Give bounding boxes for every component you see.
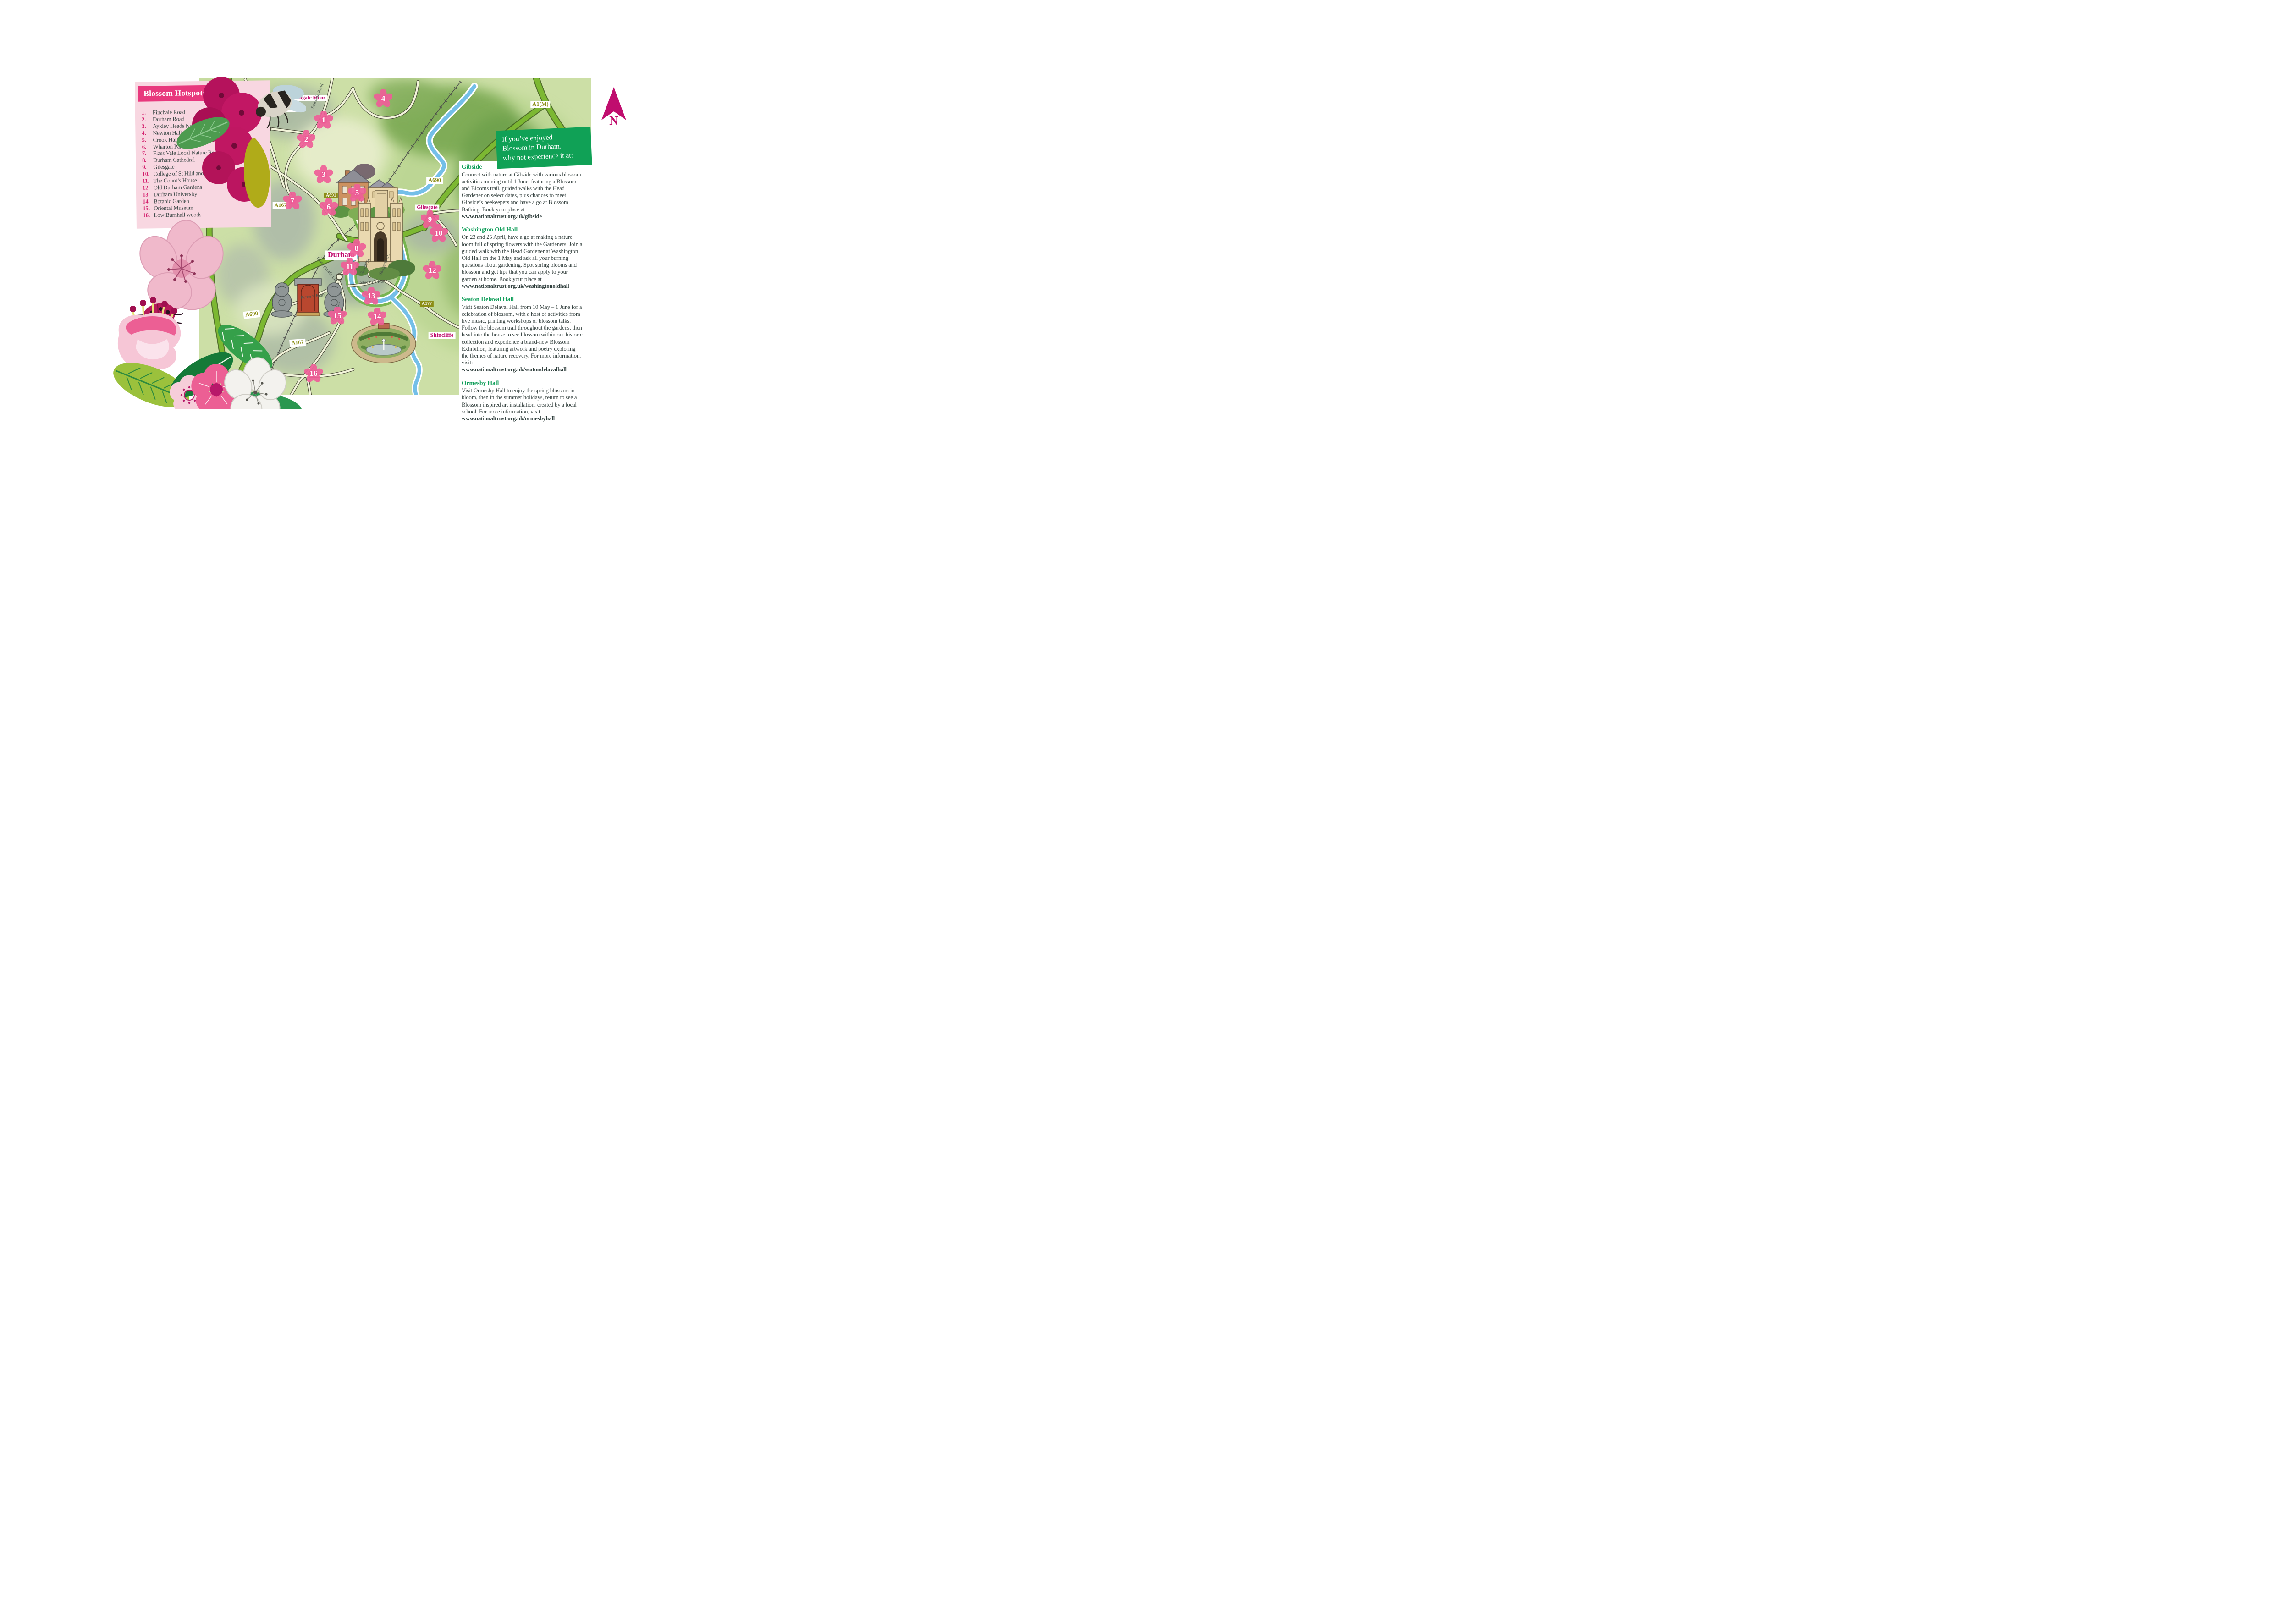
map-marker: 4 (374, 89, 392, 108)
hotspots-title: Blossom Hotspots (143, 88, 206, 98)
map-marker: 8 (347, 239, 366, 258)
map-label-langley-moor-2: Moor (227, 340, 243, 346)
road-badge-a690-east: A690 (426, 177, 443, 184)
map-marker: 15 (328, 307, 347, 325)
section-body: On 23 and 25 April, have a go at making … (462, 234, 584, 290)
section-title: Ormesby Hall (462, 380, 584, 387)
map-marker: 1 (314, 111, 333, 129)
map-marker: 3 (314, 165, 333, 184)
hotspots-title-bar: Blossom Hotspots (138, 85, 212, 102)
map-marker: 6 (320, 198, 338, 216)
map-label-gilesgate: Gilesgate (415, 205, 439, 211)
map-marker: 5 (348, 184, 366, 202)
list-item: 16.Low Burnhall woods (143, 210, 257, 219)
section-body: Visit Seaton Delaval Hall from 10 May – … (462, 304, 584, 374)
map-marker: 14 (368, 308, 386, 326)
leaf (107, 354, 195, 409)
map-marker: 13 (362, 287, 380, 305)
compass-north-indicator: N (599, 87, 629, 129)
section-title: Gibside (462, 163, 584, 171)
map-marker: 7 (283, 192, 302, 210)
map-marker: 2 (297, 130, 315, 149)
bud-flower (118, 297, 181, 370)
map-marker: 12 (423, 261, 441, 280)
map-label-langley-moor-1: Langley (227, 333, 249, 339)
blossom-hotspots-panel: Blossom Hotspots 1.Finchale Road 2.Durha… (135, 80, 271, 229)
section-link[interactable]: www.nationaltrust.org.uk/seatondelavalha… (462, 366, 584, 373)
road-badge-a167-north: A167 (283, 105, 299, 112)
promo-section-ormesby-hall: Ormesby Hall Visit Ormesby Hall to enjoy… (462, 380, 584, 423)
map-marker: 16 (304, 364, 323, 383)
hotspots-list: 1.Finchale Road 2.Durham Road 3.Aykley H… (142, 108, 257, 219)
section-link[interactable]: www.nationaltrust.org.uk/gibside (462, 213, 584, 220)
promo-section-seaton-delaval-hall: Seaton Delaval Hall Visit Seaton Delaval… (462, 296, 584, 374)
ladybird-icon (132, 299, 186, 339)
promo-section-washington-old-hall: Washington Old Hall On 23 and 25 April, … (462, 226, 584, 290)
promo-text-column: Gibside Connect with nature at Gibside w… (462, 163, 584, 428)
map-marker: 10 (430, 224, 448, 242)
promo-heading-panel: If you’ve enjoyed Blossom in Durham, why… (496, 127, 592, 169)
road-badge-a177: A177 (420, 301, 434, 307)
section-body: Connect with nature at Gibside with vari… (462, 171, 584, 220)
compass-letter: N (599, 114, 629, 128)
map-marker: 11 (341, 258, 359, 276)
road-badge-a1m: A1(M) (530, 101, 550, 108)
list-item: 10.College of St Hild and St Bede (Pelaw… (142, 170, 256, 178)
map-label-shincliffe: Shincliffe (429, 332, 456, 339)
section-link[interactable]: www.nationaltrust.org.uk/ormesbyhall (462, 415, 584, 422)
blossom-map-poster: ⇆ Framwellgate Moor Durham Gilesgate Lan… (0, 0, 708, 468)
promo-section-gibside: Gibside Connect with nature at Gibside w… (462, 163, 584, 220)
section-link[interactable]: www.nationaltrust.org.uk/washingtonoldha… (462, 283, 584, 290)
section-title: Seaton Delaval Hall (462, 296, 584, 303)
road-badge-a167-south: A167 (289, 339, 306, 347)
section-body: Visit Ormesby Hall to enjoy the spring b… (462, 387, 584, 422)
section-title: Washington Old Hall (462, 226, 584, 233)
